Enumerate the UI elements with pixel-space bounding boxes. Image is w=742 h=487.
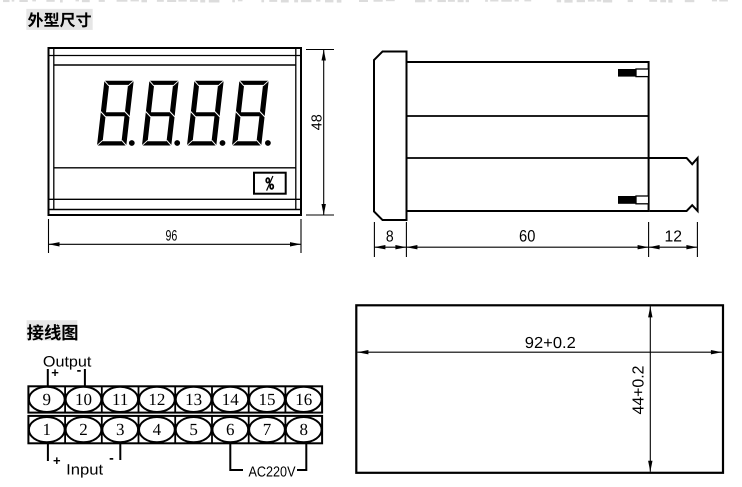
svg-text:6: 6: [226, 420, 235, 439]
svg-text:11: 11: [112, 390, 128, 409]
svg-text:44+0.2: 44+0.2: [631, 365, 648, 414]
svg-text:92+0.2: 92+0.2: [525, 335, 576, 352]
svg-text:7: 7: [263, 420, 272, 439]
svg-text:12: 12: [665, 228, 683, 245]
svg-text:2: 2: [79, 420, 88, 439]
svg-text:+: +: [51, 365, 59, 380]
svg-text:5: 5: [189, 420, 198, 439]
svg-text:60: 60: [519, 228, 535, 246]
svg-text:8: 8: [299, 420, 308, 439]
svg-text:14: 14: [222, 390, 240, 409]
svg-text:-: -: [109, 450, 114, 466]
svg-text:1: 1: [43, 420, 52, 439]
svg-text:8: 8: [386, 229, 394, 246]
svg-text:96: 96: [166, 227, 178, 244]
svg-text:16: 16: [295, 390, 312, 409]
svg-text:Input: Input: [66, 462, 104, 479]
svg-text:10: 10: [75, 390, 92, 409]
svg-text:3: 3: [116, 420, 125, 439]
svg-text:-: -: [77, 362, 82, 378]
svg-text:13: 13: [185, 390, 202, 409]
svg-text:+: +: [53, 453, 61, 468]
svg-text:AC220V: AC220V: [249, 465, 296, 481]
svg-text:4: 4: [153, 420, 162, 439]
svg-text:48: 48: [309, 114, 325, 130]
svg-text:15: 15: [259, 390, 276, 409]
svg-text:12: 12: [148, 390, 165, 409]
svg-text:9: 9: [43, 390, 52, 409]
